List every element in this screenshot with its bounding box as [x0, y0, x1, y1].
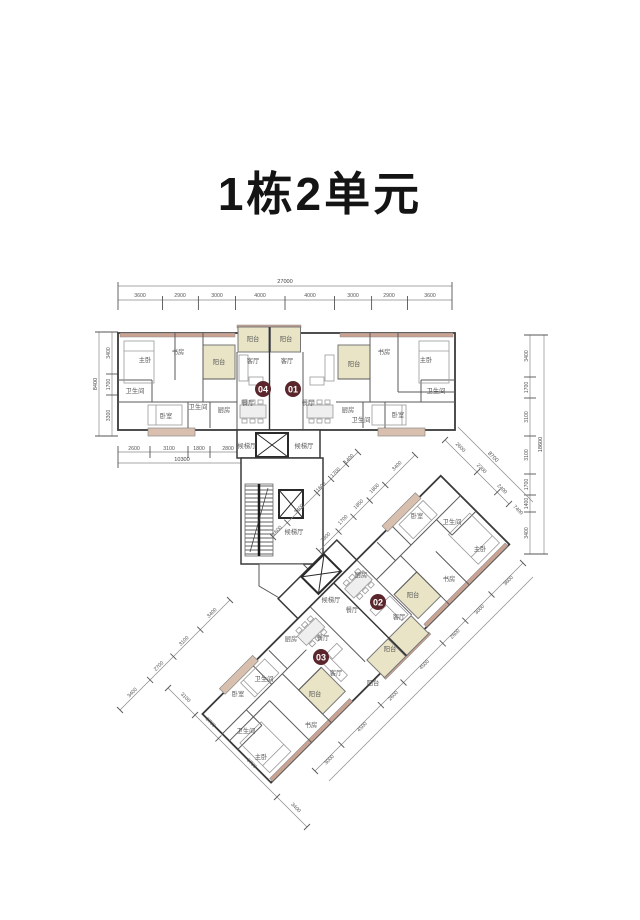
room-label-study: 书房	[443, 574, 456, 583]
room-label-bath: 卫生间	[189, 402, 208, 411]
room-label-balcony: 阳台	[384, 644, 397, 653]
dim-rot-nwu-2: 1700	[330, 467, 342, 479]
room-label-bedroom: 卧室	[392, 410, 405, 419]
room-label-master: 主卧	[420, 355, 433, 364]
dim-right-7: 3400	[524, 527, 530, 539]
dim-rot-core-4: 1700	[337, 514, 349, 526]
page-title: 1栋2单元	[0, 158, 640, 224]
room-label-master: 主卧	[255, 752, 268, 761]
dim-bl-4: 2800	[222, 446, 234, 452]
dim-right-4: 3100	[524, 449, 530, 461]
room-label-study: 书房	[172, 347, 185, 356]
room-label-living: 客厅	[281, 356, 294, 365]
dim-rot-ne-3: 2400	[496, 483, 508, 495]
dim-bl-1: 2600	[128, 446, 140, 452]
room-label-bedroom: 卧室	[411, 511, 424, 520]
dim-bl-2: 3100	[163, 446, 175, 452]
room-label-kitchen: 厨房	[285, 634, 298, 643]
dim-rot-nwu-1: 1400	[343, 453, 355, 465]
dim-right-2: 1700	[524, 382, 530, 394]
room-label-dining: 餐厅	[346, 605, 359, 614]
dim-rot-se-2: 3000	[474, 604, 486, 616]
dim-right-1: 3400	[524, 350, 530, 362]
room-label-living: 客厅	[393, 612, 406, 621]
dim-right-6: 1400	[524, 498, 530, 510]
dim-top-4: 4000	[254, 293, 266, 299]
dim-top-1: 3600	[134, 293, 146, 299]
unit-badge-03: 03	[313, 649, 329, 665]
dim-right-5: 1700	[524, 479, 530, 491]
room-label-lobby: 候梯厅	[238, 441, 257, 450]
room-label-dining: 餐厅	[242, 398, 255, 407]
unit-badge-01: 01	[285, 381, 301, 397]
room-label-kitchen: 厨房	[218, 405, 231, 414]
dim-rot-sw-4: 3400	[289, 802, 301, 814]
room-label-living: 客厅	[247, 356, 260, 365]
dim-left-total: 8400	[93, 378, 99, 390]
floorplan-page: 1栋2单元	[0, 0, 640, 920]
bottom-left-dimension-chain: 2600 3100 1800 2800 10300	[118, 446, 246, 468]
room-label-study: 书房	[305, 720, 318, 729]
dim-rot-se-6: 4500	[356, 721, 368, 733]
dim-left-3: 3300	[106, 410, 112, 422]
dim-bl-total: 10300	[174, 457, 190, 463]
dim-rot-se-5: 2600	[387, 690, 399, 702]
room-label-bath: 卫生间	[237, 726, 256, 735]
room-label-kitchen: 厨房	[342, 405, 355, 414]
dim-rot-se-7: 3000	[323, 754, 335, 766]
dim-top-7: 2900	[383, 293, 395, 299]
room-label-living: 客厅	[330, 668, 343, 677]
right-dimension-chain: 3400 1700 3100 3100 1700 1400 3400 18600…	[512, 335, 548, 554]
dim-top-8: 3600	[424, 293, 436, 299]
room-label-balcony: 阳台	[309, 689, 322, 698]
dim-right-total: 18600	[538, 437, 544, 453]
room-label-lobby: 候梯厅	[295, 441, 314, 450]
wing2-structure	[183, 456, 515, 788]
room-label-balcony: 阳台	[407, 590, 420, 599]
dim-top-6: 3000	[347, 293, 359, 299]
dim-diag-7400: 7400	[512, 504, 524, 516]
room-label-balcony: 阳台	[367, 678, 380, 687]
dim-rot-sw-1: 3100	[179, 691, 191, 703]
dim-rot-ne-1: 2600	[454, 441, 466, 453]
room-label-lobby: 候梯厅	[285, 527, 304, 536]
dim-rot-se-3: 2600	[449, 628, 461, 640]
room-label-lobby: 候梯厅	[322, 595, 341, 604]
room-label-bath: 卫生间	[352, 415, 371, 424]
unit-badge-04: 04	[255, 381, 271, 397]
room-label-bath: 卫生间	[255, 674, 274, 683]
room-label-study: 书房	[378, 347, 391, 356]
rot-nw-lower-dimension-chain: 3400 3100 2700 3400	[117, 597, 233, 713]
dim-rot-core-3: 1850	[353, 498, 365, 510]
dim-left-1: 3400	[106, 347, 112, 359]
unit-number-03: 03	[316, 653, 326, 663]
dim-bl-3: 1800	[193, 446, 205, 452]
room-label-master: 主卧	[474, 544, 487, 553]
room-label-bath: 卫生间	[427, 386, 446, 395]
dim-top-2: 2900	[174, 293, 186, 299]
room-label-balcony: 阳台	[280, 334, 293, 343]
room-label-balcony: 阳台	[348, 359, 361, 368]
room-label-bath: 卫生间	[443, 517, 462, 526]
dim-top-3: 3000	[211, 293, 223, 299]
dim-rot-core-2: 1800	[369, 483, 381, 495]
room-label-dining: 餐厅	[302, 398, 315, 407]
dim-top-5: 4000	[304, 293, 316, 299]
room-label-kitchen: 厨房	[355, 570, 368, 579]
room-label-master: 主卧	[139, 355, 152, 364]
unit-badge-02: 02	[370, 594, 386, 610]
room-label-bath: 卫生间	[126, 386, 145, 395]
top-dimension-chain: 27000 3600 2900 3000 4000 4000 3000 2900…	[118, 279, 452, 310]
room-label-bedroom: 卧室	[160, 411, 173, 420]
dim-right-3: 3100	[524, 411, 530, 423]
floorplan-svg: 27000 3600 2900 3000 4000 4000 3000 2900…	[0, 0, 640, 920]
unit-number-02: 02	[373, 598, 383, 608]
dim-rot-ne-2: 2300	[475, 463, 487, 475]
dim-top-total: 27000	[277, 279, 293, 285]
dim-left-2: 1700	[106, 379, 112, 391]
room-label-dining: 餐厅	[317, 633, 330, 642]
dim-rot-se-1: 3600	[502, 575, 514, 587]
unit-number-04: 04	[258, 385, 268, 395]
left-dimension-chain: 3400 1700 3300 8400	[93, 332, 118, 436]
room-label-balcony: 阳台	[213, 357, 226, 366]
room-label-bedroom: 卧室	[232, 689, 245, 698]
dim-rot-se-4: 4500	[418, 659, 430, 671]
room-label-balcony: 阳台	[247, 334, 260, 343]
unit-number-01: 01	[288, 385, 298, 395]
dim-rot-core-1: 3400	[391, 460, 403, 472]
